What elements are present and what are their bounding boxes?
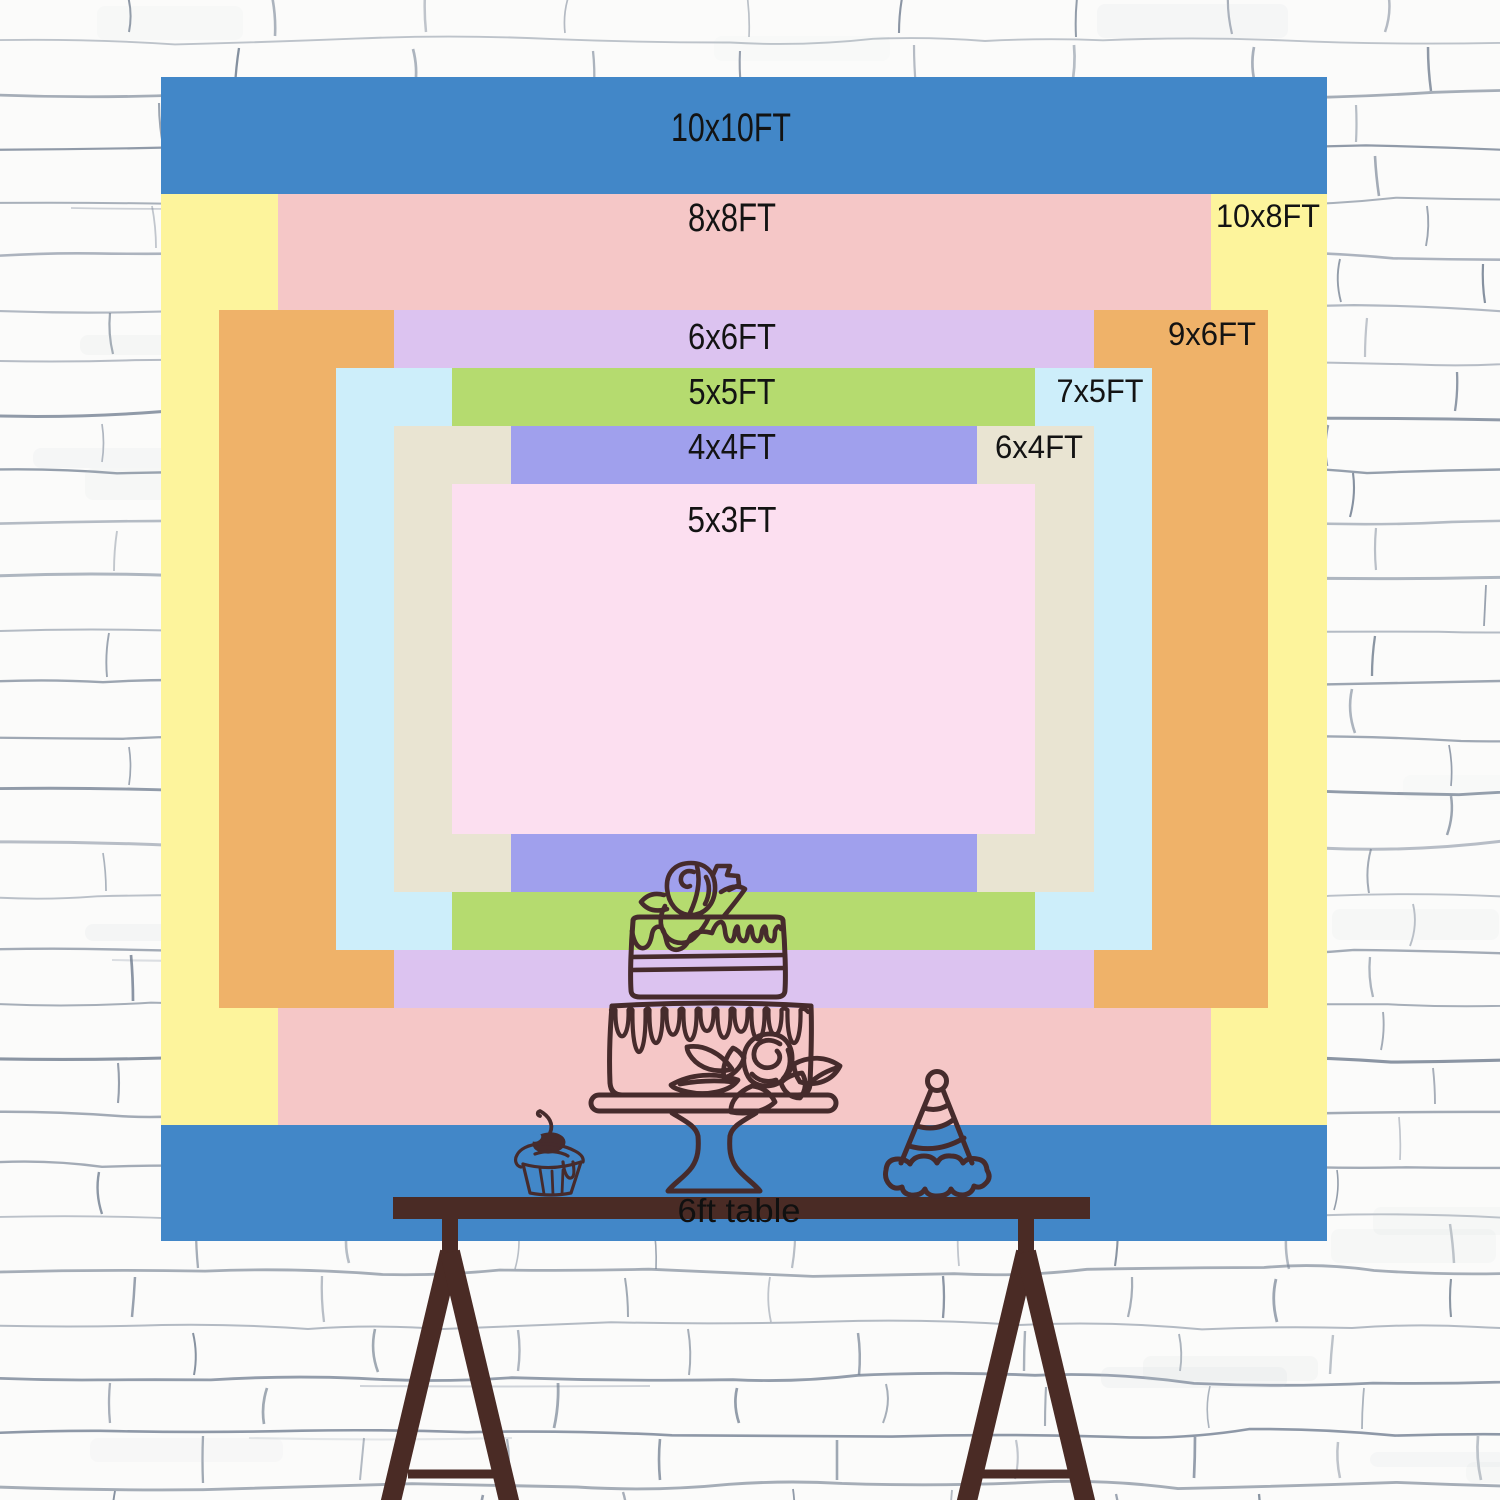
svg-text:4x4FT: 4x4FT: [688, 426, 776, 467]
svg-text:6ft table: 6ft table: [678, 1192, 801, 1229]
svg-text:9x6FT: 9x6FT: [1168, 316, 1256, 352]
svg-text:5x5FT: 5x5FT: [689, 371, 776, 412]
svg-text:6x6FT: 6x6FT: [688, 316, 776, 357]
svg-text:6x4FT: 6x4FT: [995, 429, 1083, 465]
svg-text:7x5FT: 7x5FT: [1057, 373, 1144, 409]
svg-text:5x3FT: 5x3FT: [688, 499, 777, 540]
svg-text:10x10FT: 10x10FT: [671, 106, 791, 150]
svg-text:8x8FT: 8x8FT: [688, 196, 776, 240]
svg-text:10x8FT: 10x8FT: [1216, 198, 1320, 234]
